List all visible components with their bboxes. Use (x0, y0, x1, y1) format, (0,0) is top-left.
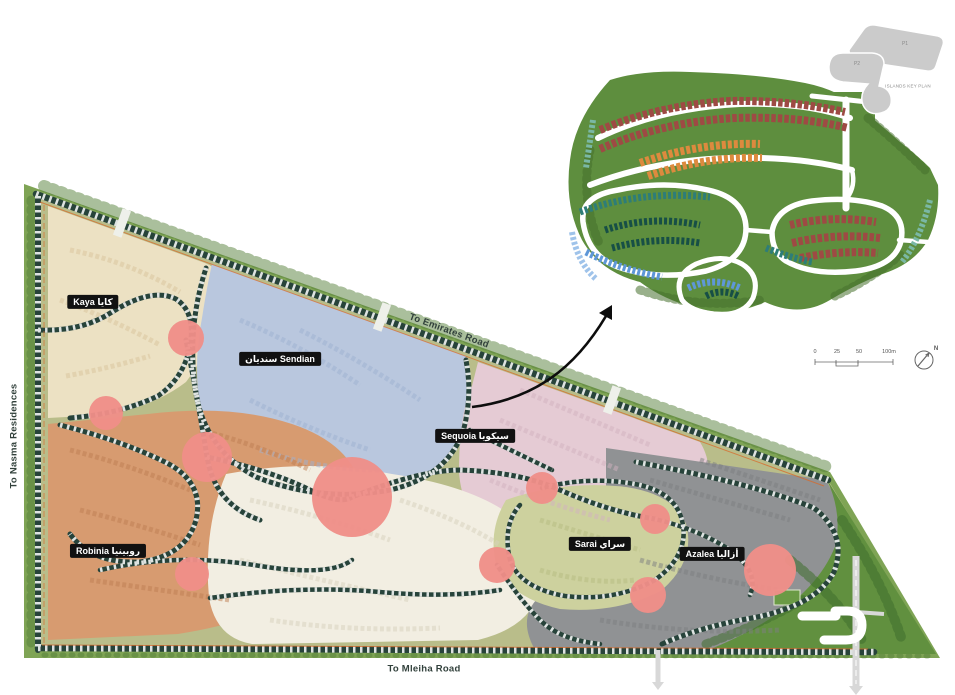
district-label-robinia[interactable]: Robinia روبينيا (70, 544, 146, 558)
amenity-marker[interactable] (744, 544, 796, 596)
amenity-marker[interactable] (630, 577, 666, 613)
north-label: N (934, 346, 938, 352)
scale-bar (815, 359, 893, 366)
amenity-marker[interactable] (89, 396, 123, 430)
masterplan-page: Kaya كايا سنديان Sendian Sequoia سيكويا … (0, 0, 955, 695)
amenity-marker[interactable] (175, 557, 209, 591)
district-label-sarai[interactable]: Sarai سراي (569, 537, 631, 551)
keyplan-caption: ISLANDS KEY PLAN (885, 84, 931, 89)
keyplan-p2-label: P2 (854, 61, 860, 67)
amenity-marker[interactable] (182, 432, 232, 482)
scale-label-0: 0 (813, 349, 816, 355)
amenity-marker[interactable] (479, 547, 515, 583)
amenity-marker[interactable] (168, 320, 204, 356)
road-label-nasma: To Nasma Residences (9, 384, 20, 489)
scale-label-50: 50 (856, 349, 862, 355)
district-label-kaya[interactable]: Kaya كايا (67, 295, 118, 309)
north-arrow (915, 351, 933, 369)
amenity-marker[interactable] (640, 504, 670, 534)
inset-detail-plan (569, 72, 949, 315)
amenity-marker[interactable] (312, 457, 392, 537)
amenity-marker[interactable] (526, 472, 558, 504)
scale-label-100: 100m (882, 349, 896, 355)
road-label-mleiha: To Mleiha Road (388, 664, 461, 675)
scale-label-25: 25 (834, 349, 840, 355)
district-label-sequoia[interactable]: Sequoia سيكويا (435, 429, 515, 443)
keyplan-p1-label: P1 (902, 41, 908, 47)
district-label-azalea[interactable]: Azalea أزاليا (680, 547, 745, 561)
district-label-sendian[interactable]: سنديان Sendian (239, 352, 321, 366)
